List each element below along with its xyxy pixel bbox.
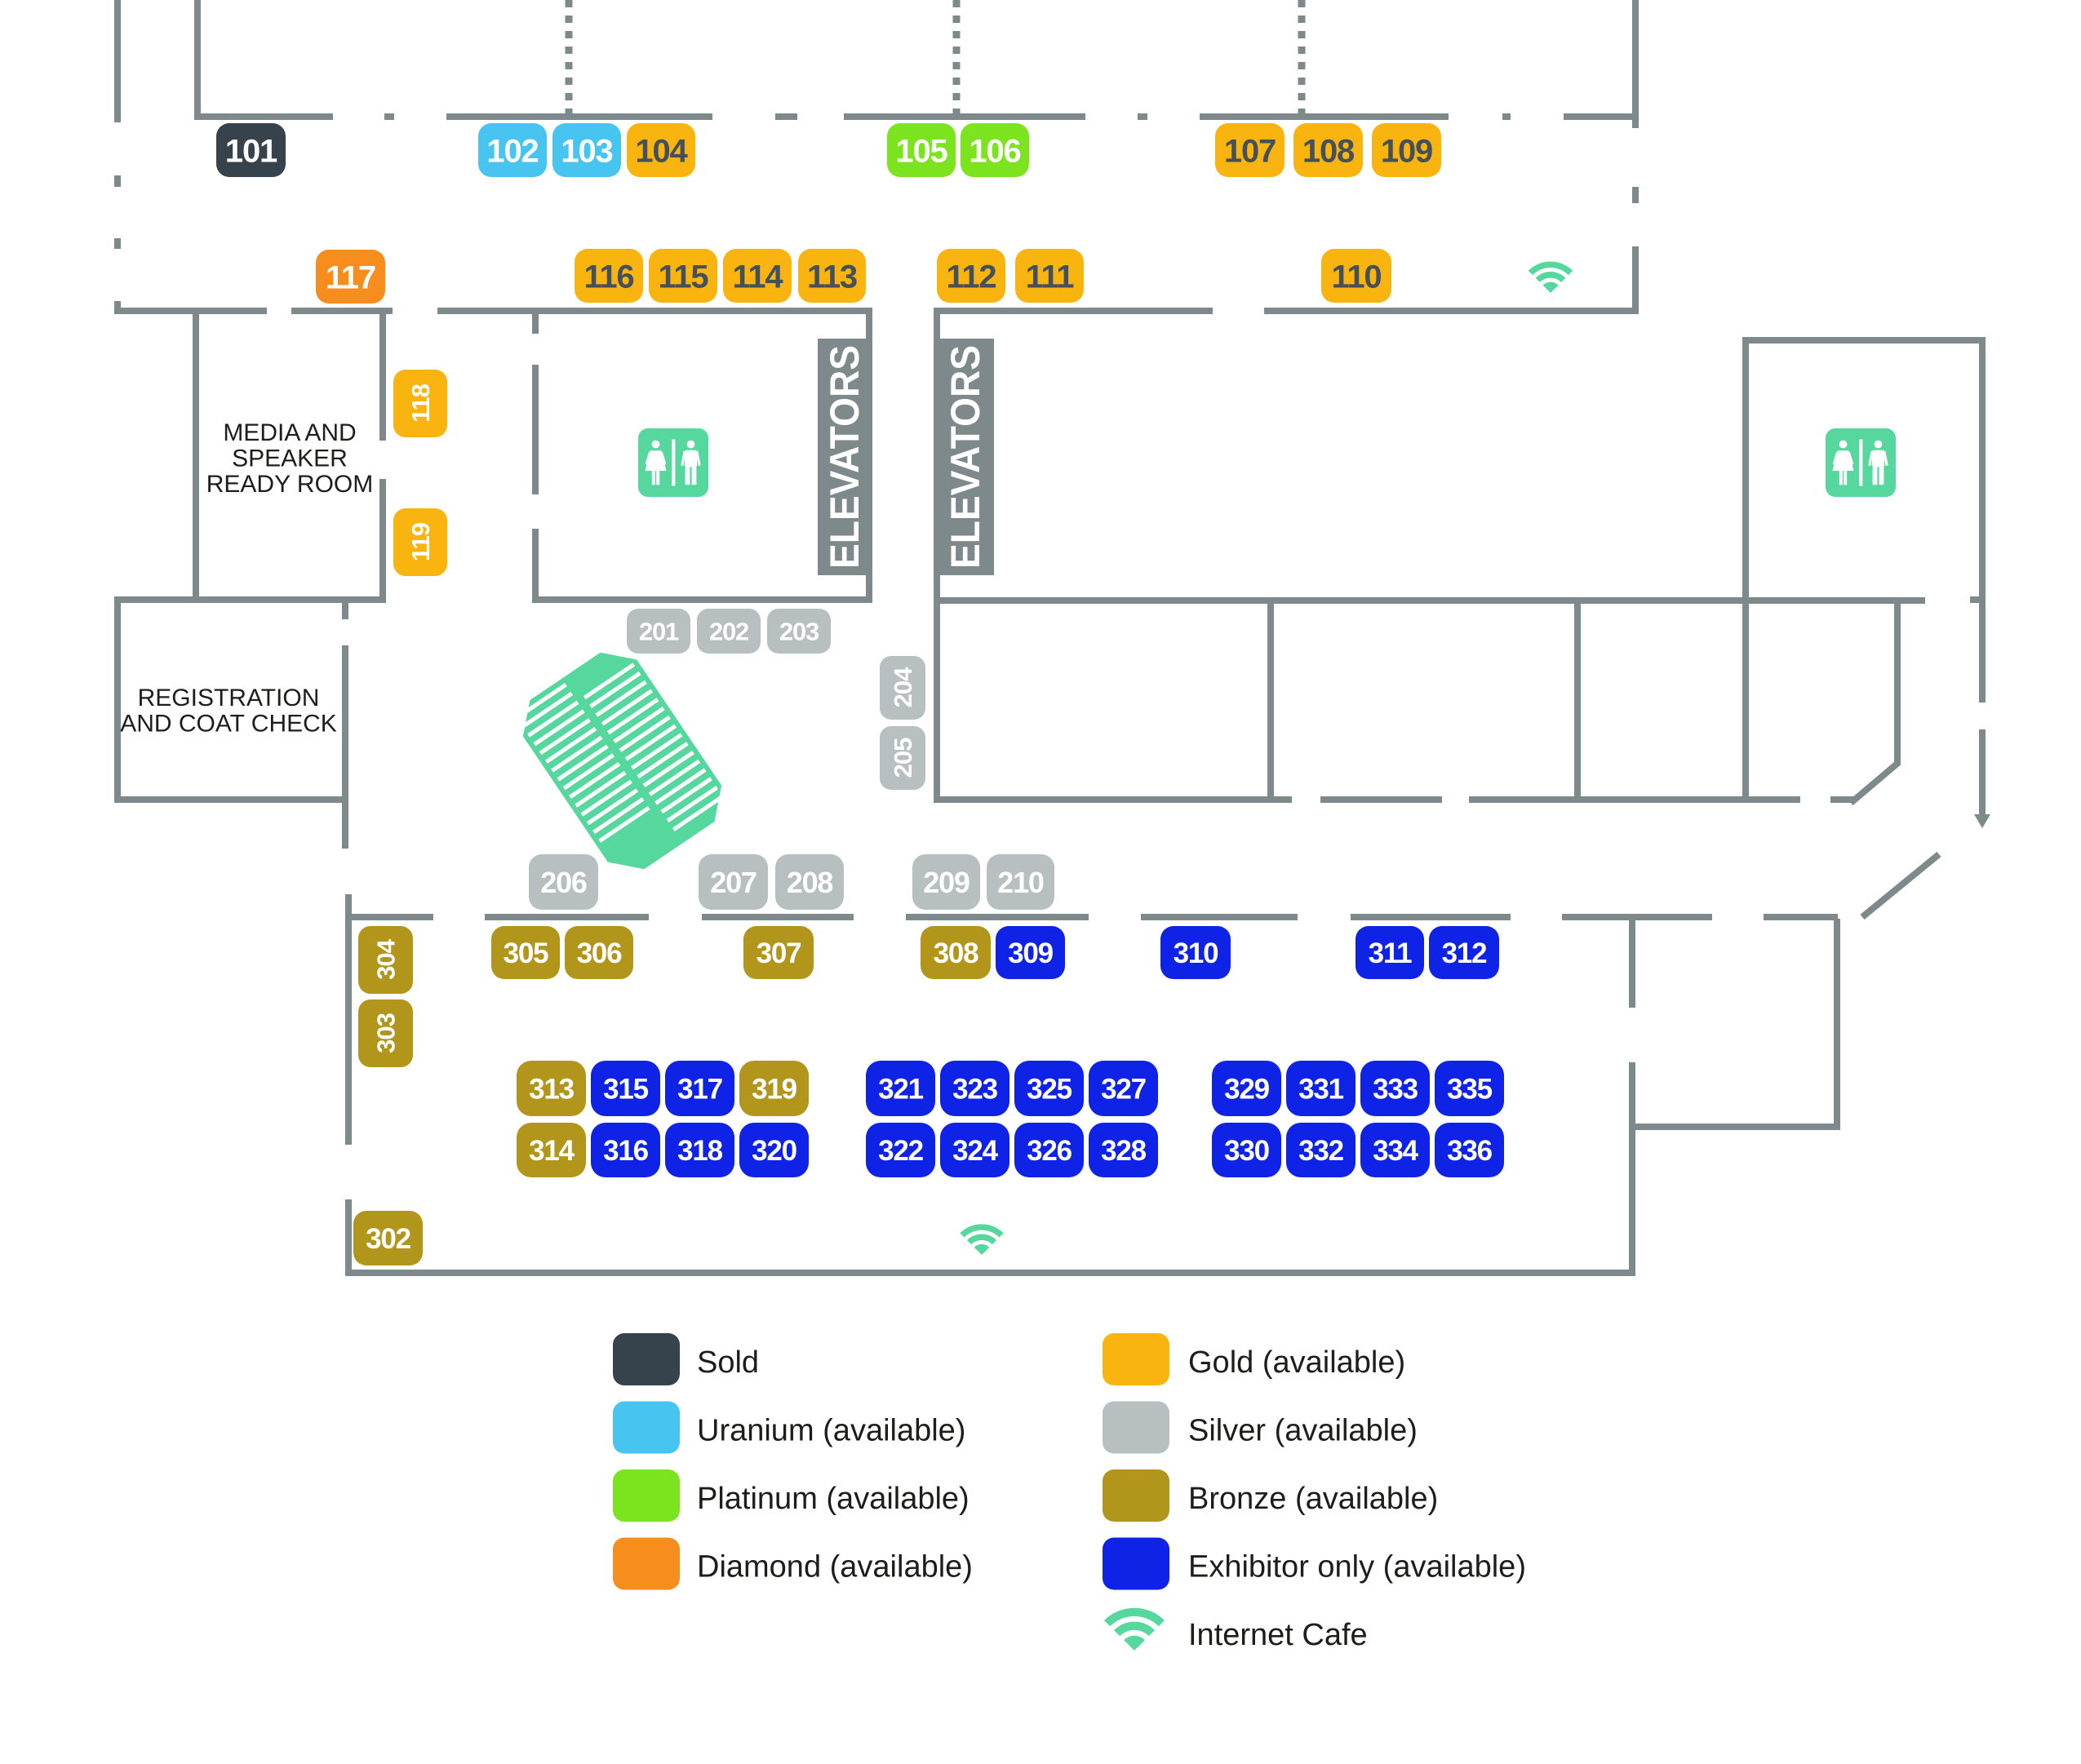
svg-text:336: 336 [1447,1135,1493,1167]
svg-text:117: 117 [326,259,375,295]
svg-text:209: 209 [923,866,970,899]
svg-text:328: 328 [1101,1135,1147,1167]
svg-text:313: 313 [529,1074,575,1106]
svg-text:Bronze (available): Bronze (available) [1188,1482,1438,1516]
svg-text:308: 308 [934,937,979,969]
svg-text:114: 114 [733,259,784,295]
svg-text:319: 319 [752,1074,797,1106]
svg-text:102: 102 [486,133,538,169]
svg-text:115: 115 [659,259,709,295]
svg-text:116: 116 [584,259,634,295]
svg-text:Uranium (available): Uranium (available) [697,1414,965,1448]
svg-text:AND COAT CHECK: AND COAT CHECK [120,711,337,738]
svg-text:Platinum (available): Platinum (available) [697,1482,970,1516]
svg-text:205: 205 [889,738,917,778]
svg-text:201: 201 [639,618,679,646]
svg-text:307: 307 [757,937,801,969]
svg-text:112: 112 [947,259,996,295]
svg-text:Silver (available): Silver (available) [1188,1414,1418,1448]
svg-text:317: 317 [677,1074,722,1106]
svg-text:202: 202 [709,618,748,646]
svg-text:Internet Cafe: Internet Cafe [1188,1618,1368,1652]
svg-text:MEDIA AND: MEDIA AND [223,419,356,446]
svg-text:108: 108 [1302,133,1355,169]
svg-text:SPEAKER: SPEAKER [232,445,348,472]
svg-text:306: 306 [577,937,623,969]
svg-text:106: 106 [969,133,1020,169]
svg-text:111: 111 [1026,259,1075,295]
svg-text:REGISTRATION: REGISTRATION [138,685,320,711]
svg-text:118: 118 [406,383,435,423]
svg-text:325: 325 [1027,1074,1072,1106]
svg-text:334: 334 [1373,1135,1419,1167]
svg-text:323: 323 [952,1074,998,1106]
svg-text:Exhibitor only (available): Exhibitor only (available) [1188,1550,1526,1584]
svg-text:109: 109 [1381,133,1432,169]
svg-text:305: 305 [504,937,549,969]
svg-text:105: 105 [895,133,947,169]
svg-text:119: 119 [406,522,435,561]
svg-text:330: 330 [1224,1135,1270,1167]
svg-text:310: 310 [1174,937,1219,969]
svg-text:321: 321 [878,1074,924,1106]
svg-text:Sold: Sold [697,1345,759,1380]
svg-text:320: 320 [752,1135,797,1167]
svg-text:ELEVATORS: ELEVATORS [822,345,867,569]
svg-text:Diamond (available): Diamond (available) [697,1550,973,1584]
svg-text:318: 318 [677,1135,723,1167]
svg-text:327: 327 [1101,1074,1146,1106]
svg-text:329: 329 [1224,1074,1270,1106]
svg-text:107: 107 [1224,133,1276,169]
svg-text:303: 303 [372,1013,401,1053]
svg-text:316: 316 [603,1135,649,1167]
svg-text:309: 309 [1008,937,1054,969]
svg-text:315: 315 [603,1074,649,1106]
svg-text:208: 208 [787,866,833,899]
svg-text:110: 110 [1332,259,1382,295]
svg-text:READY ROOM: READY ROOM [206,471,373,498]
svg-text:207: 207 [710,866,757,899]
svg-text:324: 324 [952,1135,999,1167]
svg-text:335: 335 [1447,1074,1493,1106]
svg-text:Gold (available): Gold (available) [1188,1345,1405,1380]
svg-text:206: 206 [540,866,587,899]
svg-text:304: 304 [372,938,401,979]
svg-text:113: 113 [807,259,857,295]
svg-text:322: 322 [878,1135,924,1167]
svg-text:331: 331 [1298,1074,1344,1106]
svg-text:103: 103 [561,133,612,169]
svg-text:204: 204 [889,667,917,707]
svg-text:210: 210 [997,866,1044,899]
svg-text:302: 302 [366,1223,411,1255]
svg-text:326: 326 [1027,1135,1072,1167]
svg-text:312: 312 [1442,937,1488,969]
svg-text:203: 203 [779,618,819,646]
svg-text:101: 101 [225,133,277,169]
svg-text:332: 332 [1298,1135,1344,1167]
svg-text:ELEVATORS: ELEVATORS [943,345,988,569]
svg-text:104: 104 [635,133,688,169]
svg-text:311: 311 [1369,937,1413,969]
svg-text:333: 333 [1373,1074,1418,1106]
svg-text:314: 314 [529,1135,575,1167]
